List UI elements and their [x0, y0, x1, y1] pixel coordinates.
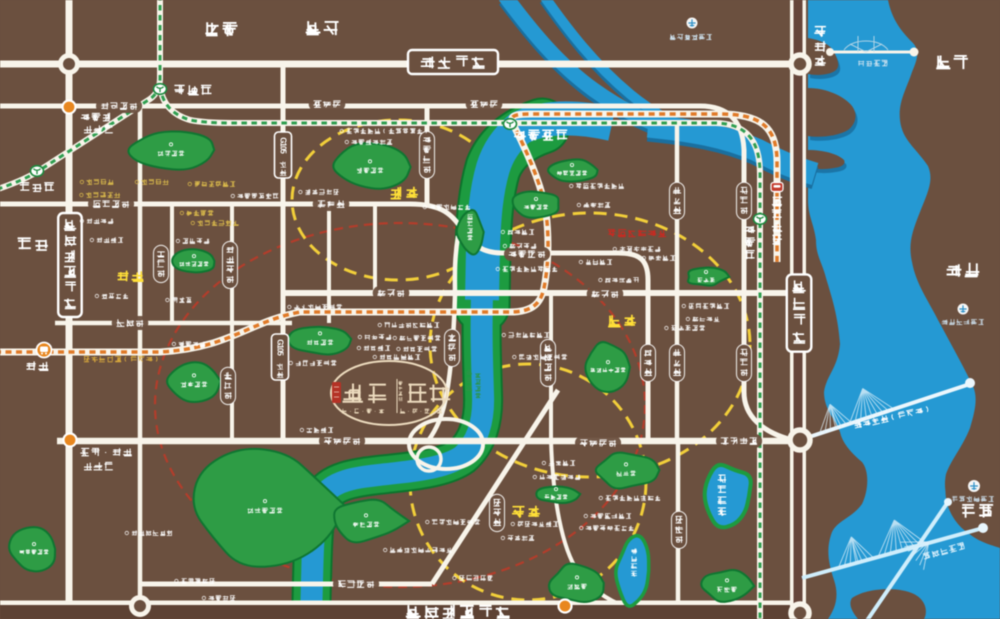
svg-text:G105: G105: [279, 137, 288, 154]
svg-text:G105: G105: [276, 339, 285, 356]
